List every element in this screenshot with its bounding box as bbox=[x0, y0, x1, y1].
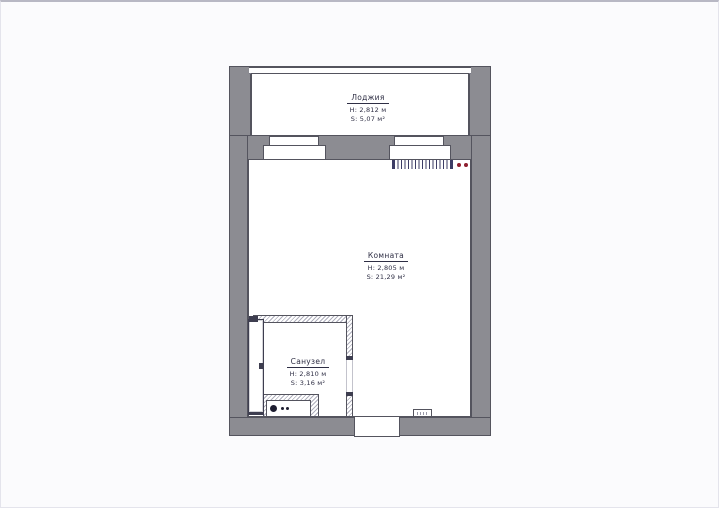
burner-dot-icon bbox=[286, 407, 289, 410]
burner-icon bbox=[270, 405, 277, 412]
bathroom-wall-top bbox=[253, 315, 353, 323]
floor-plan-canvas: Лоджия H: 2,812 м S: 5,07 м² Комната H: … bbox=[0, 0, 719, 508]
socket-icon bbox=[457, 163, 461, 167]
room-area: S: 21,29 м² bbox=[336, 273, 436, 282]
electrical-panel-icon bbox=[413, 409, 432, 418]
room-label-main: Комната H: 2,805 м S: 21,29 м² bbox=[336, 243, 436, 282]
bathroom-door-jamb-bottom bbox=[346, 392, 353, 396]
room-height: H: 2,810 м bbox=[258, 370, 358, 379]
room-height: H: 2,805 м bbox=[336, 264, 436, 273]
room-height: H: 2,812 м bbox=[318, 106, 418, 115]
window-right-sill bbox=[389, 145, 451, 160]
window-left-sill bbox=[263, 145, 326, 160]
door-handle-icon bbox=[259, 363, 263, 369]
socket-icon bbox=[464, 163, 468, 167]
wall-top-right-pier bbox=[469, 66, 491, 136]
room-area: S: 3,16 м² bbox=[258, 379, 358, 388]
room-area: S: 5,07 м² bbox=[318, 115, 418, 124]
burner-dot-icon bbox=[281, 407, 284, 410]
bathroom-door-jamb-top bbox=[346, 356, 353, 360]
wall-top-left-pier bbox=[229, 66, 251, 136]
entrance-door-opening bbox=[354, 416, 400, 437]
wall-left bbox=[229, 135, 248, 436]
room-name: Санузел bbox=[287, 357, 330, 368]
room-name: Лоджия bbox=[347, 93, 388, 104]
bathroom-corner-jamb bbox=[249, 316, 258, 322]
radiator-icon bbox=[392, 160, 453, 169]
room-label-loggia: Лоджия H: 2,812 м S: 5,07 м² bbox=[318, 85, 418, 124]
floor-plan: Лоджия H: 2,812 м S: 5,07 м² Комната H: … bbox=[229, 66, 491, 436]
wall-right bbox=[471, 135, 491, 436]
room-name: Комната bbox=[364, 251, 408, 262]
room-label-bathroom: Санузел H: 2,810 м S: 3,16 м² bbox=[258, 349, 358, 388]
